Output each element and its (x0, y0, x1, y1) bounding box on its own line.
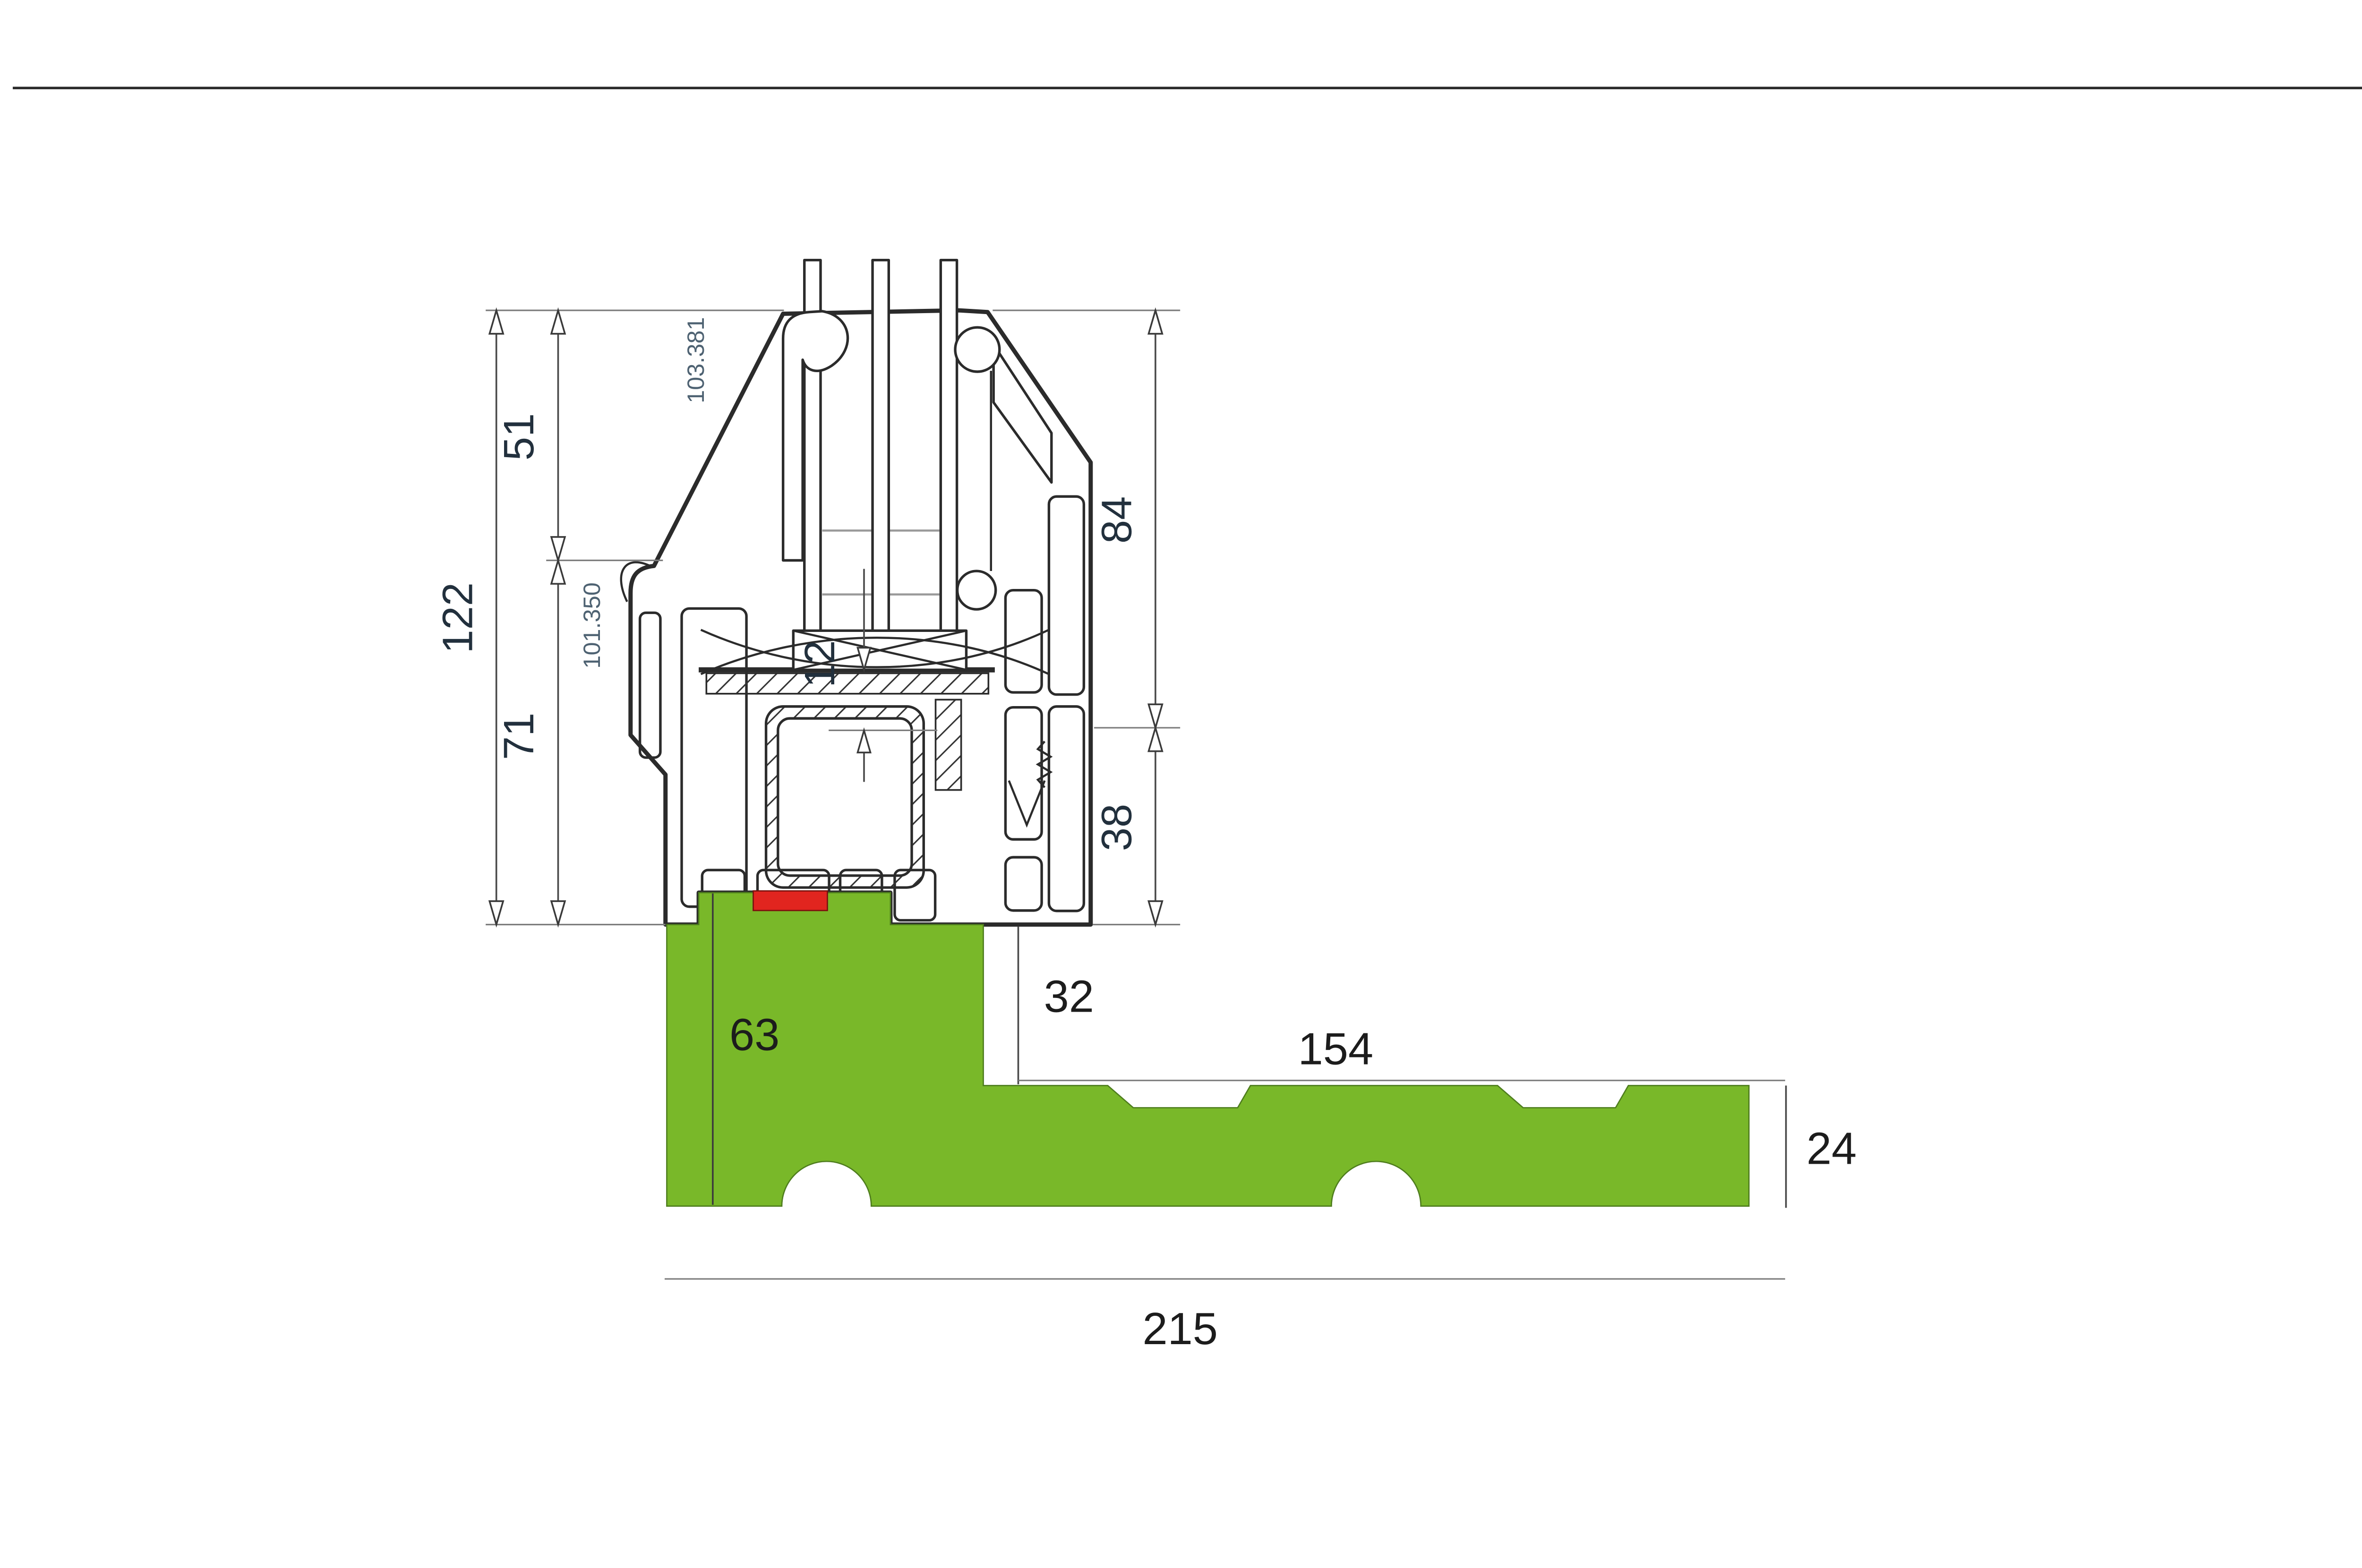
hatched-angle-piece (936, 699, 961, 790)
sill-extension-profile (667, 893, 1749, 1206)
dim-label-71: 71 (495, 713, 543, 760)
arrowhead (1148, 704, 1162, 728)
article-number-upper-profile: 103.381 (682, 317, 709, 403)
arrowhead (551, 901, 565, 925)
dim-label-38: 38 (1093, 804, 1140, 851)
glass-pane (941, 260, 957, 631)
gasket-curl (958, 571, 996, 609)
glass-pane (873, 260, 889, 631)
arrowhead (1148, 310, 1162, 334)
arrowhead (489, 310, 503, 334)
gasket-curl (955, 327, 1000, 372)
red-marker (753, 891, 828, 910)
dim-label-84: 84 (1093, 496, 1140, 544)
dim-label-122: 122 (434, 582, 481, 653)
dim-label-32: 32 (1044, 971, 1094, 1022)
arrowhead (1148, 901, 1162, 925)
dim-label-12: 12 (796, 640, 844, 688)
arrowhead (489, 901, 503, 925)
dim-label-154: 154 (1298, 1023, 1373, 1074)
arrowhead (551, 537, 565, 561)
drawing-canvas: 122 51 71 84 38 12 32 63 154 24 215 103.… (0, 0, 2362, 1568)
window-sill-cross-section-drawing: 122 51 71 84 38 12 32 63 154 24 215 103.… (0, 0, 2362, 1568)
dim-label-63: 63 (729, 1010, 779, 1060)
arrowhead (551, 561, 565, 584)
dim-label-215: 215 (1142, 1304, 1217, 1354)
dim-label-51: 51 (495, 413, 543, 460)
arrowhead (551, 310, 565, 334)
rebate-hatched-seat (706, 673, 988, 694)
arrowhead (1148, 728, 1162, 751)
dim-label-24: 24 (1806, 1123, 1857, 1174)
article-number-main-profile: 101.350 (578, 582, 605, 669)
